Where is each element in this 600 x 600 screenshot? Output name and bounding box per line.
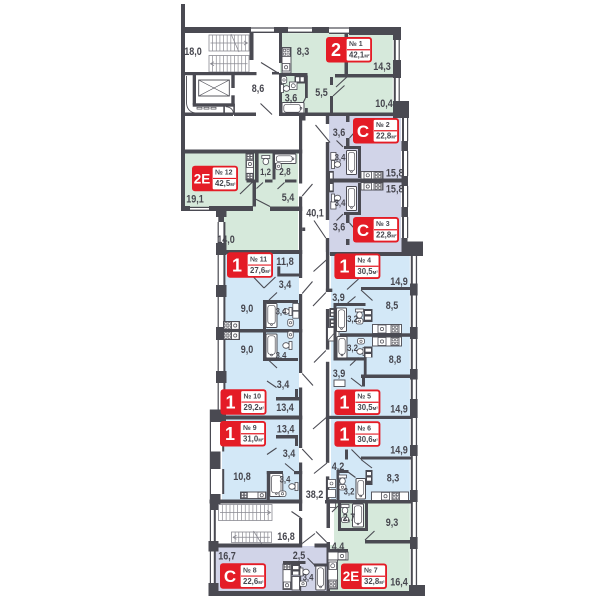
svg-text:14,9: 14,9 [390, 444, 408, 456]
svg-text:№ 8: № 8 [243, 566, 257, 574]
svg-text:С: С [357, 221, 369, 240]
svg-text:3,4: 3,4 [335, 152, 346, 163]
svg-text:5,5: 5,5 [315, 87, 328, 99]
svg-text:1: 1 [225, 393, 235, 413]
svg-text:8,3: 8,3 [387, 472, 400, 484]
svg-text:5,4: 5,4 [282, 192, 295, 204]
svg-text:№ 11: № 11 [250, 255, 267, 263]
svg-text:38,2: 38,2 [306, 489, 324, 501]
svg-text:С: С [224, 567, 236, 586]
svg-text:14,3: 14,3 [373, 61, 391, 73]
svg-text:9,0: 9,0 [241, 344, 254, 356]
svg-text:№ 3: № 3 [376, 220, 390, 228]
svg-text:2,7: 2,7 [343, 512, 356, 524]
svg-text:40,1: 40,1 [306, 207, 324, 219]
svg-text:15,8: 15,8 [386, 184, 404, 196]
svg-text:16,4: 16,4 [390, 576, 408, 588]
svg-text:2,8: 2,8 [279, 167, 291, 178]
svg-text:8,8: 8,8 [389, 354, 402, 366]
svg-text:8,6: 8,6 [252, 83, 265, 95]
svg-text:№ 4: № 4 [357, 257, 371, 265]
svg-text:3,9: 3,9 [332, 292, 345, 304]
svg-text:№ 12: № 12 [215, 169, 233, 177]
svg-text:11,8: 11,8 [276, 256, 294, 268]
svg-text:16,7: 16,7 [218, 550, 236, 562]
svg-text:№ 1: № 1 [349, 40, 363, 48]
svg-text:19,1: 19,1 [186, 193, 204, 205]
svg-text:2Е: 2Е [343, 569, 360, 584]
svg-text:3,2: 3,2 [347, 314, 358, 325]
svg-text:13,4: 13,4 [277, 424, 295, 436]
svg-text:2,5: 2,5 [293, 550, 306, 562]
svg-text:1,2: 1,2 [260, 167, 271, 178]
svg-text:№ 2: № 2 [376, 121, 390, 129]
svg-text:№ 10: № 10 [244, 392, 262, 400]
svg-text:14,9: 14,9 [390, 403, 408, 415]
svg-text:1: 1 [225, 424, 235, 444]
svg-text:4,4: 4,4 [332, 541, 345, 553]
svg-text:1: 1 [339, 393, 349, 413]
svg-text:8,3: 8,3 [297, 46, 310, 58]
svg-text:№ 6: № 6 [357, 424, 371, 432]
svg-text:3,2: 3,2 [344, 486, 355, 497]
svg-text:3,4: 3,4 [277, 379, 290, 391]
svg-text:4,2: 4,2 [332, 461, 345, 473]
svg-text:3,4: 3,4 [279, 279, 292, 291]
svg-text:8,5: 8,5 [386, 300, 399, 312]
svg-text:1: 1 [339, 425, 349, 445]
svg-text:16,8: 16,8 [277, 531, 295, 543]
svg-text:3,6: 3,6 [285, 92, 298, 104]
svg-text:2Е: 2Е [194, 171, 211, 186]
svg-text:№ 7: № 7 [364, 567, 378, 575]
svg-text:14,9: 14,9 [390, 276, 408, 288]
svg-text:3,4: 3,4 [283, 448, 296, 460]
svg-text:3,4: 3,4 [303, 572, 314, 583]
svg-text:13,4: 13,4 [276, 402, 294, 414]
svg-text:15,8: 15,8 [386, 167, 404, 179]
svg-text:3,2: 3,2 [347, 343, 358, 354]
svg-text:3,4: 3,4 [280, 474, 291, 485]
svg-text:3,9: 3,9 [333, 368, 346, 380]
svg-text:10,8: 10,8 [233, 471, 251, 483]
svg-text:2: 2 [331, 40, 341, 60]
svg-text:3,4: 3,4 [276, 306, 287, 317]
svg-text:14,0: 14,0 [217, 234, 235, 246]
svg-text:1: 1 [339, 257, 349, 277]
svg-text:10,4: 10,4 [375, 98, 393, 110]
svg-text:3,4: 3,4 [335, 198, 346, 209]
svg-text:3,6: 3,6 [333, 221, 346, 233]
svg-text:3,4: 3,4 [276, 350, 287, 361]
svg-text:№ 5: № 5 [357, 393, 371, 401]
svg-text:С: С [357, 122, 369, 141]
svg-text:9,3: 9,3 [386, 517, 399, 529]
svg-text:18,0: 18,0 [184, 46, 202, 58]
svg-text:9,0: 9,0 [241, 303, 254, 315]
svg-text:3,6: 3,6 [333, 127, 346, 139]
svg-text:№ 9: № 9 [243, 424, 257, 432]
svg-text:1: 1 [232, 256, 242, 276]
